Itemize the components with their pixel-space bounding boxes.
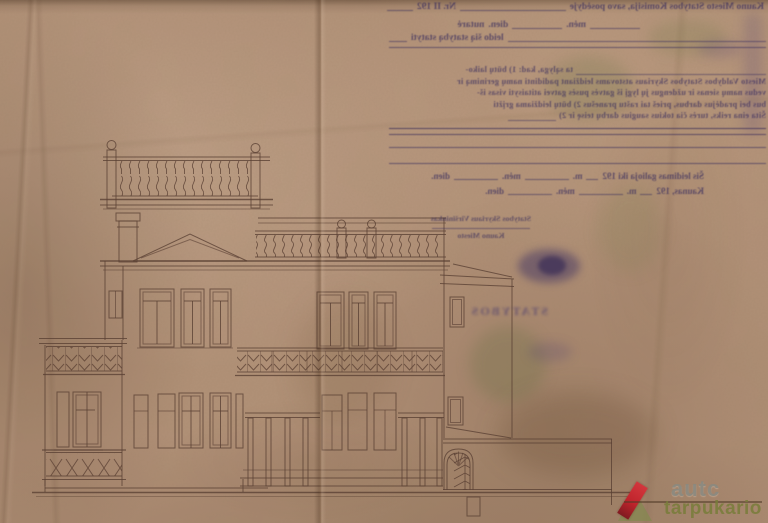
arched-door bbox=[444, 449, 480, 516]
second-floor-windows bbox=[109, 289, 396, 349]
diamond-parapet bbox=[42, 450, 126, 480]
chevron-balcony-band bbox=[43, 347, 445, 376]
roof-balustrade bbox=[100, 141, 273, 210]
pediment bbox=[133, 234, 247, 261]
first-floor-windows bbox=[54, 392, 396, 450]
terrace-balustrade bbox=[255, 218, 446, 258]
right-wing bbox=[440, 264, 514, 438]
cornice bbox=[100, 261, 450, 270]
ground-line bbox=[32, 479, 636, 497]
chimney bbox=[116, 213, 140, 262]
elevation-drawing bbox=[0, 0, 768, 523]
scanned-permit-document: Kauno Miesto Statybos Komisija, savo pos… bbox=[0, 0, 768, 523]
